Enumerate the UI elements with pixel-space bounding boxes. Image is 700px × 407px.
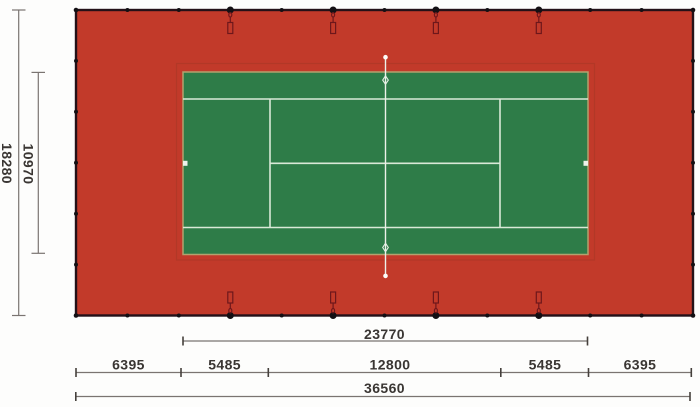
svg-text:6395: 6395 bbox=[112, 357, 145, 373]
svg-text:12800: 12800 bbox=[370, 357, 411, 373]
svg-text:36560: 36560 bbox=[364, 380, 405, 396]
svg-text:10970: 10970 bbox=[21, 144, 37, 185]
svg-text:18280: 18280 bbox=[0, 143, 15, 184]
svg-text:5485: 5485 bbox=[529, 357, 562, 373]
svg-text:6395: 6395 bbox=[624, 357, 657, 373]
svg-text:23770: 23770 bbox=[364, 326, 405, 342]
svg-text:5485: 5485 bbox=[208, 357, 241, 373]
